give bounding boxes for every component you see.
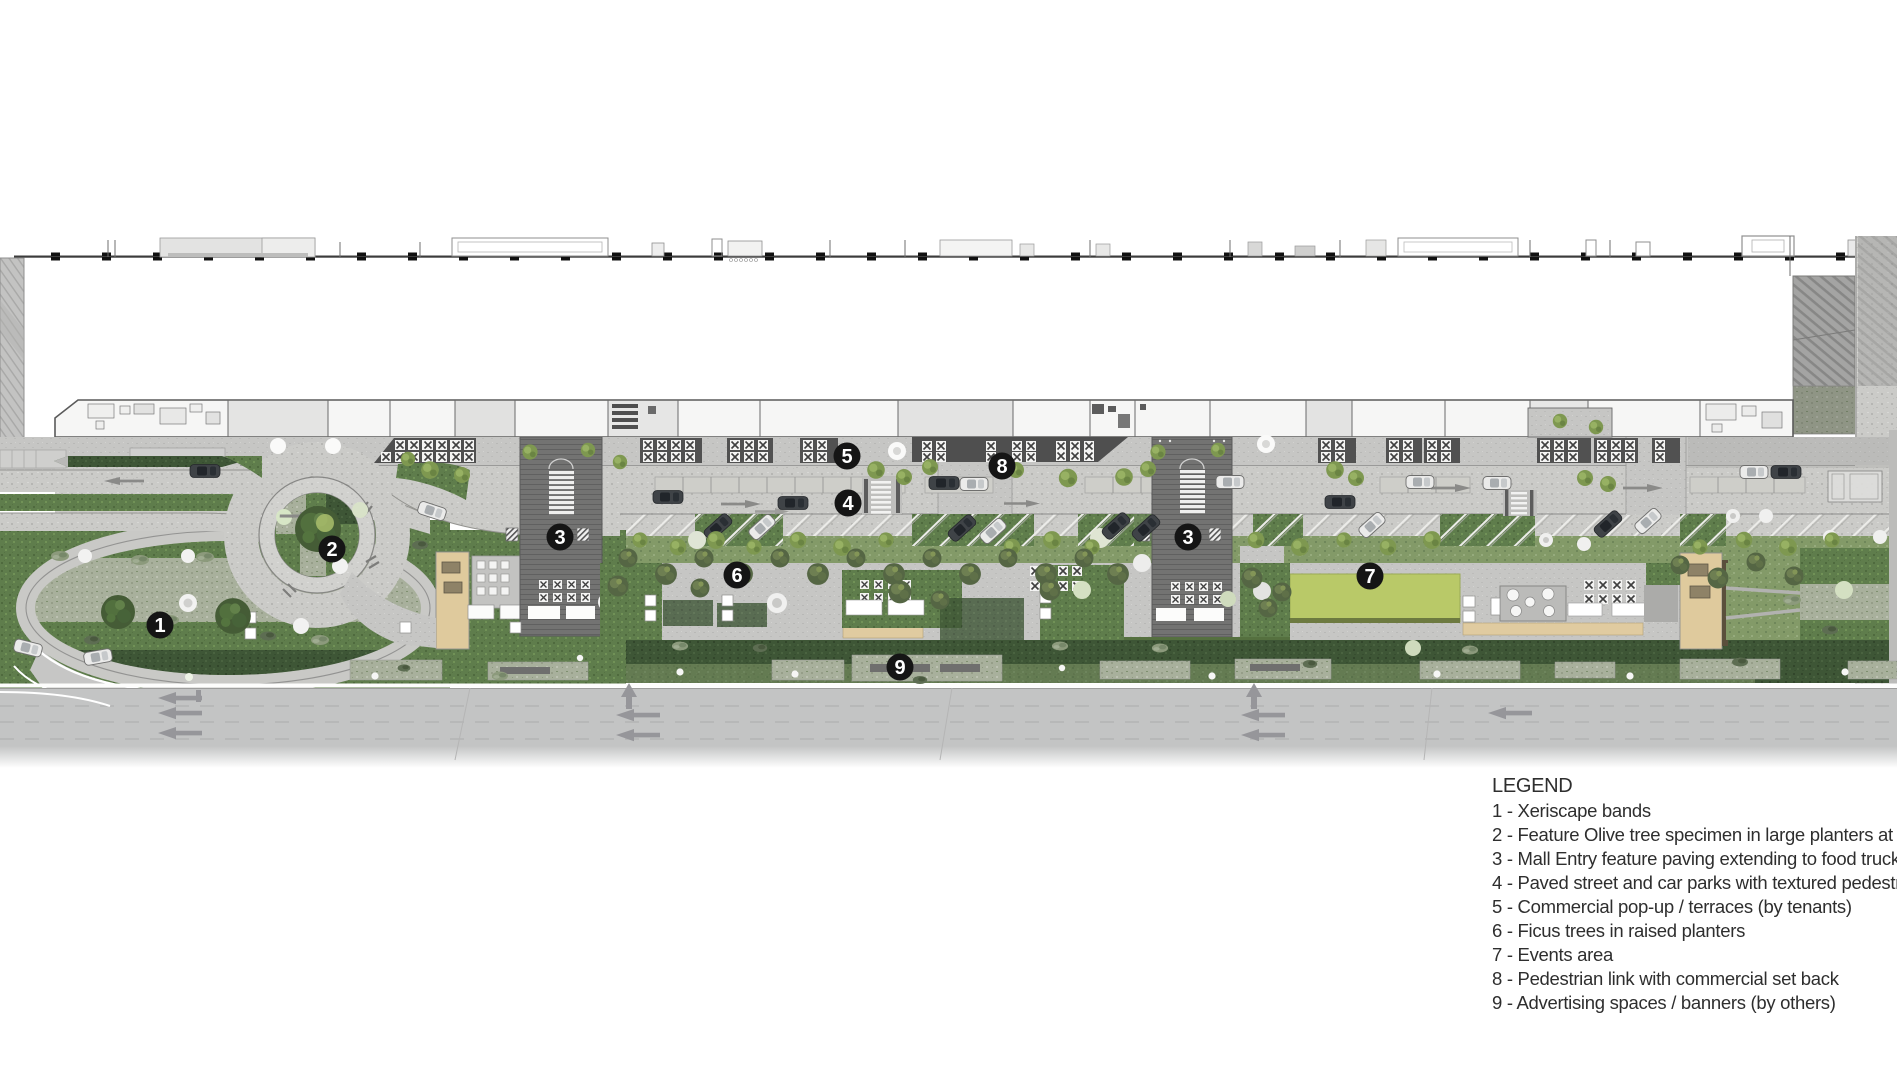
svg-text:9 - Advertising spaces / banne: 9 - Advertising spaces / banners (by oth… <box>1492 992 1836 1013</box>
svg-text:7 - Events area: 7 - Events area <box>1492 944 1614 965</box>
svg-text:2 - Feature Olive tree specime: 2 - Feature Olive tree specimen in large… <box>1492 824 1897 845</box>
svg-text:1 - Xeriscape bands: 1 - Xeriscape bands <box>1492 800 1651 821</box>
svg-text:3: 3 <box>1182 527 1193 549</box>
svg-text:2: 2 <box>326 539 337 561</box>
svg-text:6: 6 <box>731 565 742 587</box>
svg-text:4 - Paved street and car parks: 4 - Paved street and car parks with text… <box>1492 872 1897 893</box>
svg-text:7: 7 <box>1364 566 1375 588</box>
svg-text:5 - Commercial pop-up / terrac: 5 - Commercial pop-up / terraces (by ten… <box>1492 896 1852 917</box>
svg-text:LEGEND: LEGEND <box>1492 775 1572 797</box>
svg-text:8 - Pedestrian link with comme: 8 - Pedestrian link with commercial set … <box>1492 968 1840 989</box>
svg-text:9: 9 <box>894 657 905 679</box>
svg-text:4: 4 <box>842 493 854 515</box>
svg-text:5: 5 <box>841 446 852 468</box>
svg-text:8: 8 <box>996 456 1007 478</box>
svg-text:3 - Mall Entry feature paving: 3 - Mall Entry feature paving extending … <box>1492 848 1897 869</box>
svg-text:1: 1 <box>154 615 165 637</box>
svg-text:3: 3 <box>554 527 565 549</box>
svg-text:6 - Ficus trees in raised plan: 6 - Ficus trees in raised planters <box>1492 920 1745 941</box>
